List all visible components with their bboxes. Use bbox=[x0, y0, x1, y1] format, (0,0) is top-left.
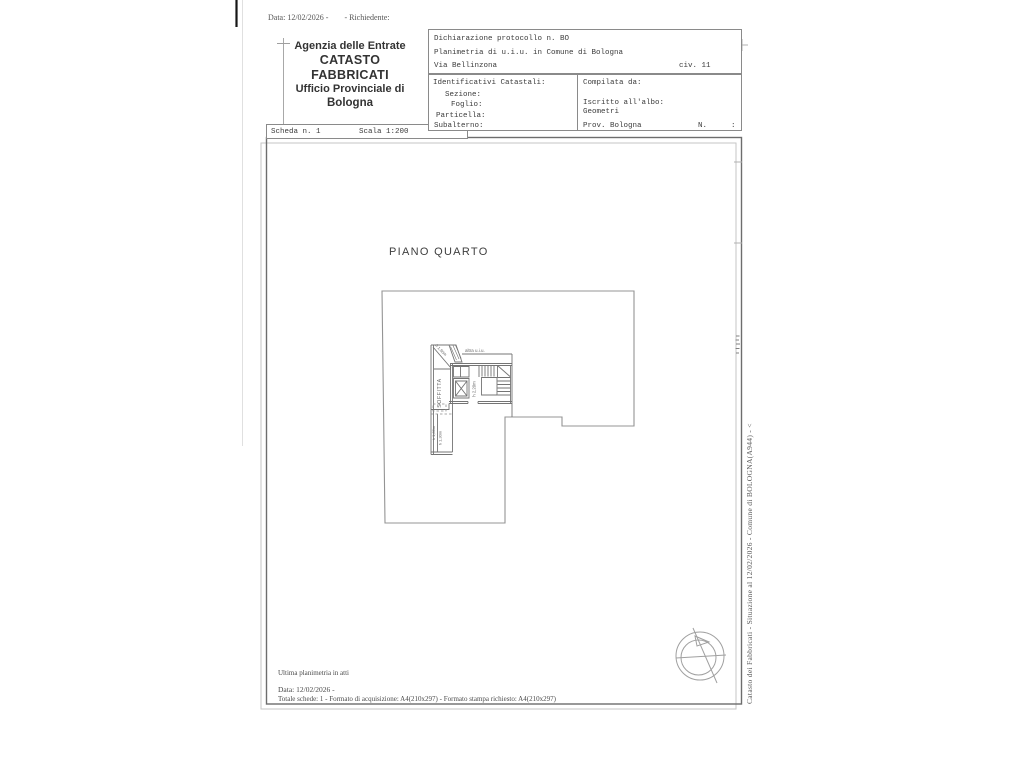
sheet-number: Scheda n. 1 bbox=[271, 127, 321, 137]
field-particella: Particella: bbox=[436, 111, 486, 121]
corridor-soffitta bbox=[431, 345, 512, 455]
north-arrow-compass bbox=[676, 628, 726, 683]
office-type: Ufficio Provinciale di bbox=[283, 83, 417, 96]
margin-caption: Catasto dei Fabbricati - Situazione al 1… bbox=[745, 386, 756, 704]
field-sezione: Sezione: bbox=[445, 90, 481, 100]
top-meta-line: Data: 12/02/2026 - - Richiedente: bbox=[268, 13, 390, 22]
height-label-low-1: h 1,86m bbox=[431, 425, 436, 440]
office-name: Agenzia delle Entrate bbox=[283, 40, 417, 53]
height-label-elevator: h 2,20m bbox=[472, 381, 477, 397]
planimetria-line: Planimetria di u.i.u. in Comune di Bolog… bbox=[434, 48, 623, 58]
floor-title: PIANO QUARTO bbox=[389, 246, 489, 258]
identifiers-title: Identificativi Catastali: bbox=[433, 78, 546, 88]
declaration-box: Dichiarazione protocollo n. BO Planimetr… bbox=[428, 29, 742, 74]
office-city: Bologna bbox=[283, 96, 417, 110]
compiler-title: Compilata da: bbox=[583, 78, 642, 88]
adjacent-unit-label: altra u.i.u. bbox=[465, 348, 485, 353]
scale-label: Scala 1:200 bbox=[359, 127, 409, 137]
height-label-low-2: h 1,30m bbox=[438, 430, 443, 445]
office-header: Agenzia delle Entrate CATASTO FABBRICATI… bbox=[283, 40, 417, 110]
cadastral-identifiers-box: Identificativi Catastali: Sezione: Fogli… bbox=[428, 74, 578, 131]
number-colon: : bbox=[731, 121, 736, 131]
field-foglio: Foglio: bbox=[451, 100, 483, 110]
elevator-shaft bbox=[454, 367, 470, 399]
albo-value: Geometri bbox=[583, 107, 619, 117]
scanned-cadastral-sheet: SOFFITTA altra u.i.u. h 1,90m h 2,20m h … bbox=[0, 0, 1024, 768]
number-label: N. bbox=[698, 121, 707, 131]
civic-number: civ. 11 bbox=[679, 61, 711, 71]
office-register: CATASTO FABBRICATI bbox=[283, 53, 417, 83]
staircase bbox=[479, 366, 511, 396]
frame-ghost-border bbox=[261, 143, 736, 709]
footer-line-2: Data: 12/02/2026 - bbox=[278, 685, 335, 694]
requester-label: - Richiedente: bbox=[344, 13, 389, 22]
province-line: Prov. Bologna bbox=[583, 121, 642, 131]
compiler-box: Compilata da: Iscritto all'albo: Geometr… bbox=[577, 74, 742, 131]
footer-line-1: Ultima planimetria in atti bbox=[278, 669, 349, 677]
stairwell-core bbox=[431, 364, 512, 455]
protocol-line: Dichiarazione protocollo n. BO bbox=[434, 34, 569, 44]
street-line: Via Bellinzona bbox=[434, 61, 497, 71]
footer-line-3: Totale schede: 1 - Formato di acquisizio… bbox=[278, 695, 556, 703]
room-label-soffitta: SOFFITTA bbox=[437, 378, 443, 408]
field-subalterno: Subalterno: bbox=[434, 121, 484, 131]
date-label: Data: 12/02/2026 - bbox=[268, 13, 328, 22]
frame-border bbox=[267, 138, 742, 705]
building-outline bbox=[382, 291, 634, 523]
